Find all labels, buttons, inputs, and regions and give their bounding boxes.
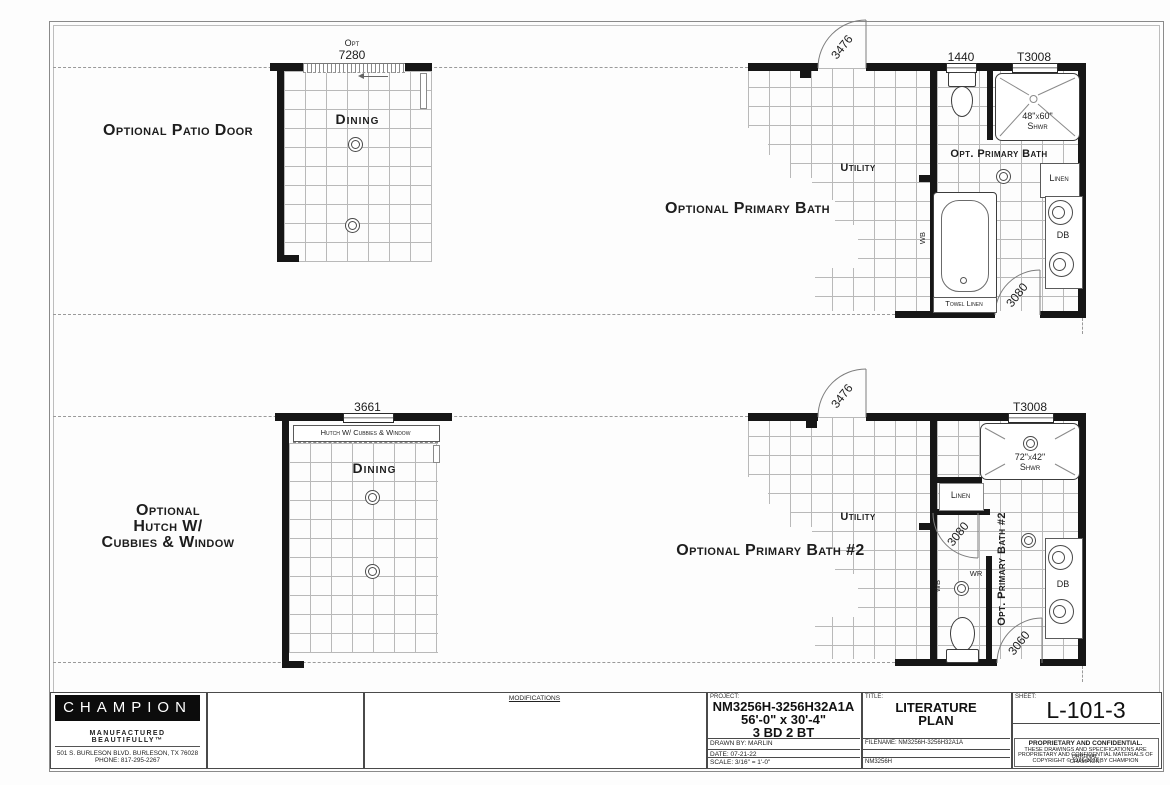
- double-bowl-label: DB: [1045, 231, 1081, 241]
- wr-label: WR: [966, 570, 986, 578]
- dining-room-label: Dining: [320, 112, 395, 127]
- sheet-divider: [1012, 723, 1160, 724]
- dining2-wall-left: [282, 413, 289, 668]
- patio-opening-dimension: 7280: [332, 48, 372, 62]
- cutline-bottom-2: [53, 662, 895, 663]
- dining-wall-stub: [277, 255, 299, 262]
- champion-logo: CHAMPION: [55, 695, 200, 721]
- towel-linen-label: Towel Linen: [934, 300, 994, 308]
- sheet-number: L-101-3: [1012, 697, 1160, 724]
- light-fixture-icon: [365, 490, 380, 505]
- title-line2: PLAN: [862, 713, 1010, 728]
- wall-stub: [919, 523, 930, 530]
- dining2-wall-top-right: [392, 413, 452, 421]
- optional-primary-bath2-label: Optional Primary Bath #2: [638, 542, 903, 559]
- shower-window-size: T3008: [1007, 50, 1061, 64]
- legal-copyright: COPYRIGHT © 1976-2022 BY CHAMPION: [1014, 758, 1157, 765]
- utility2-room-label: Utility: [826, 512, 890, 524]
- sink-icon: [1049, 599, 1074, 624]
- wb2-label: WB: [934, 575, 942, 597]
- logo-divider: [55, 746, 200, 747]
- champion-phone: PHONE: 817-295-2267: [52, 757, 203, 764]
- hutch-cabinet: Hutch W/ Cubbies & Window: [293, 425, 440, 442]
- patio-door-opening: [303, 63, 405, 73]
- utility-room-label: Utility: [826, 163, 890, 175]
- toilet2-tank: [946, 649, 979, 663]
- towel-linen-cabinet: Towel Linen: [933, 297, 997, 313]
- literature-plan-sheet: { "plan_top": { "patio_label": "Optional…: [0, 0, 1170, 785]
- light-fixture-icon: [345, 218, 360, 233]
- dining2-wall-stub: [282, 661, 304, 668]
- title-model: NM3256H: [862, 757, 1010, 768]
- dining-cabinet-line: [420, 73, 427, 109]
- linen-closet: Linen: [1040, 163, 1080, 198]
- titleblock-modifications-box: [364, 692, 707, 769]
- optional-hutch-label-line3: Cubbies & Window: [62, 534, 274, 551]
- dining-wall-top-right: [405, 63, 432, 71]
- sink-icon: [1048, 545, 1073, 570]
- dining2-window: [343, 413, 394, 423]
- dining2-room-label: Dining: [337, 461, 412, 476]
- wc2-divider-wall: [986, 556, 992, 666]
- shower2-window-size: T3008: [1003, 400, 1057, 414]
- tub-drain: [960, 277, 967, 284]
- shower-48x60: 48"x60" Shwr: [995, 73, 1080, 141]
- titleblock-empty-box: [207, 692, 364, 769]
- wb-label: WB: [919, 227, 927, 249]
- cutline-right-1: [1082, 318, 1083, 334]
- light-fixture-icon: [348, 137, 363, 152]
- toilet-tank: [948, 72, 976, 87]
- optional-primary-bath-label: Optional Primary Bath: [640, 200, 855, 217]
- modifications-header: MODIFICATIONS: [364, 695, 705, 702]
- double-bowl2-label: DB: [1045, 580, 1081, 590]
- light-fixture-icon: [1023, 436, 1038, 451]
- dining-wall-top-left: [270, 63, 303, 71]
- shower-72x42: 72"x42" Shwr: [980, 423, 1080, 480]
- light-fixture-icon: [996, 169, 1011, 184]
- optional-hutch-label-line2: Hutch W/: [100, 518, 236, 535]
- bath2-wall-bottom-b: [1040, 659, 1086, 666]
- cutline-bottom-1: [53, 314, 895, 315]
- bath-wall-bottom-b: [1040, 311, 1086, 318]
- hutch-hatch-line: [293, 442, 438, 443]
- slide-arrow-line: [364, 76, 388, 77]
- optional-patio-door-label: Optional Patio Door: [78, 122, 278, 139]
- linen2-label: Linen: [940, 491, 981, 501]
- light-fixture-icon: [365, 564, 380, 579]
- dining2-cabinet-line: [433, 445, 440, 463]
- linen2-closet: Linen: [939, 483, 984, 511]
- door-jamb: [800, 70, 811, 78]
- linen-label: Linen: [1041, 174, 1077, 184]
- dining2-wall-top-left: [275, 413, 343, 421]
- door-jamb: [806, 420, 817, 428]
- sink-icon: [1049, 252, 1074, 277]
- hutch-label: Hutch W/ Cubbies & Window: [294, 429, 437, 437]
- shower-window: [1012, 63, 1058, 73]
- champion-tagline: MANUFACTURED BEAUTIFULLY™: [55, 730, 200, 744]
- project-scale: SCALE: 3/16" = 1'-0": [707, 757, 860, 768]
- optional-hutch-label-line1: Optional: [100, 502, 236, 519]
- shower2-window: [1008, 413, 1054, 423]
- opt-primary-bath-room-label: Opt. Primary Bath: [943, 149, 1055, 161]
- dining-wall-left: [277, 64, 284, 262]
- wc-divider-wall: [987, 68, 993, 140]
- wall-stub: [919, 175, 930, 182]
- light-fixture-icon: [954, 581, 969, 596]
- opt-primary-bath2-room-label: Opt. Primary Bath #2: [997, 494, 1009, 644]
- shower2-abbr-label: Shwr: [983, 463, 1077, 473]
- wc-window-size: 1440: [936, 50, 986, 64]
- shower-abbr-label: Shwr: [998, 122, 1077, 132]
- dining-tile-floor: [284, 71, 432, 262]
- cutline-right-2: [1082, 666, 1083, 682]
- sink-icon: [1048, 200, 1073, 225]
- dining2-window-size: 3661: [343, 400, 392, 414]
- light-fixture-icon: [1021, 533, 1036, 548]
